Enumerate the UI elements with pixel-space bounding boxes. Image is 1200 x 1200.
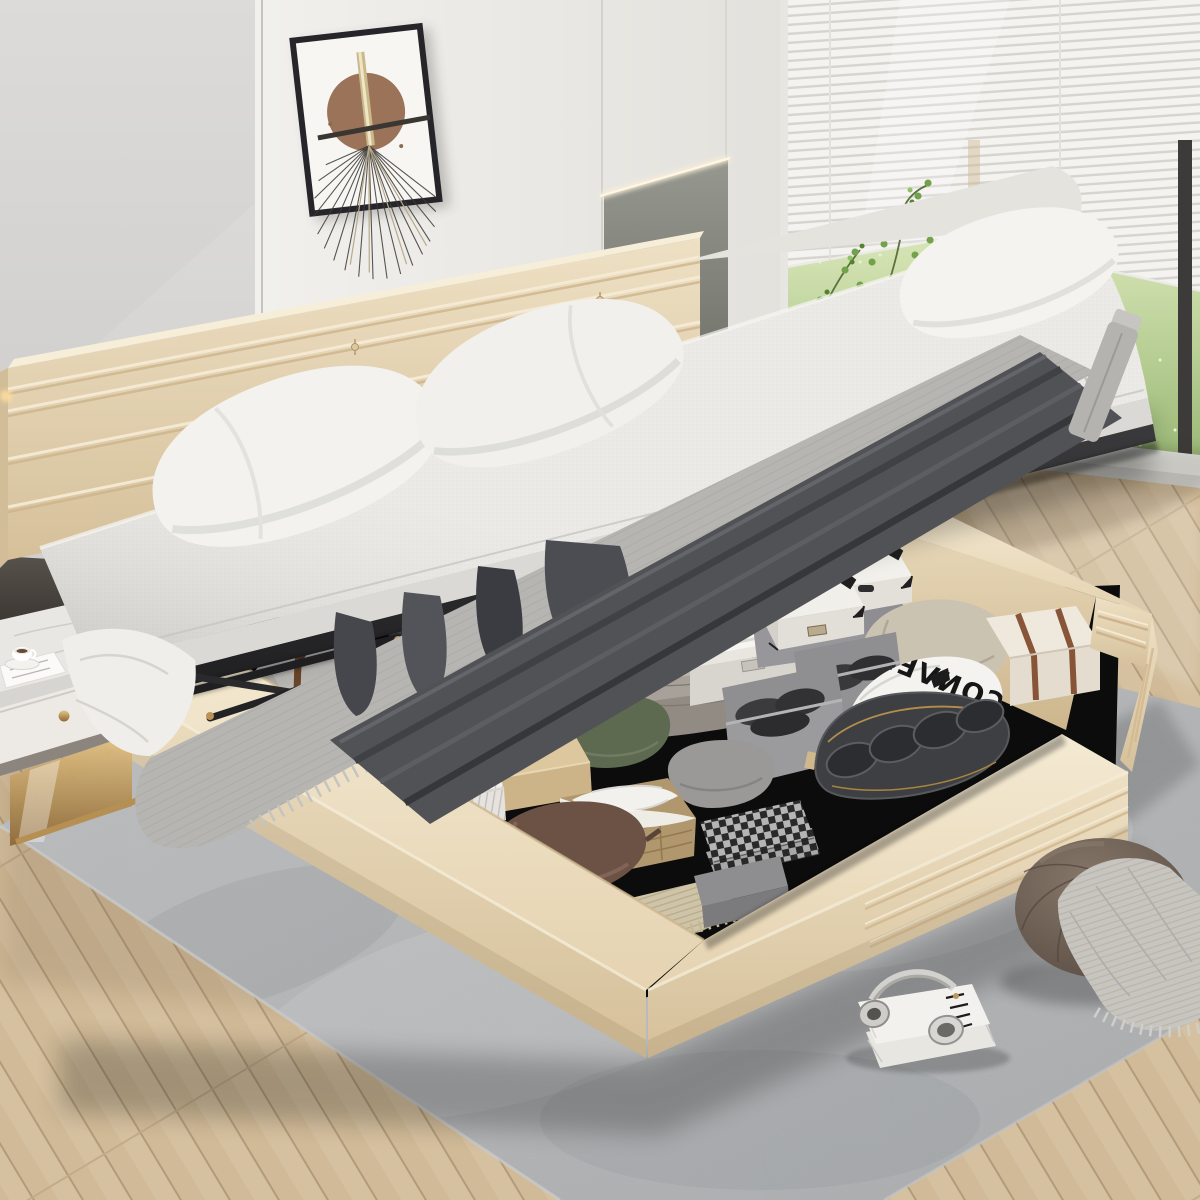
coffee [17, 649, 28, 653]
bedroom-photo: CONVERSE [0, 0, 1200, 1200]
hinge-accent [953, 993, 959, 999]
headboard-accent-light [0, 390, 12, 402]
window-frame-dark [1178, 140, 1192, 472]
drawer-knob [59, 711, 70, 722]
box-label [808, 625, 827, 636]
pivot-bolt [206, 712, 214, 720]
scene-canvas: CONVERSE [0, 0, 1200, 1200]
